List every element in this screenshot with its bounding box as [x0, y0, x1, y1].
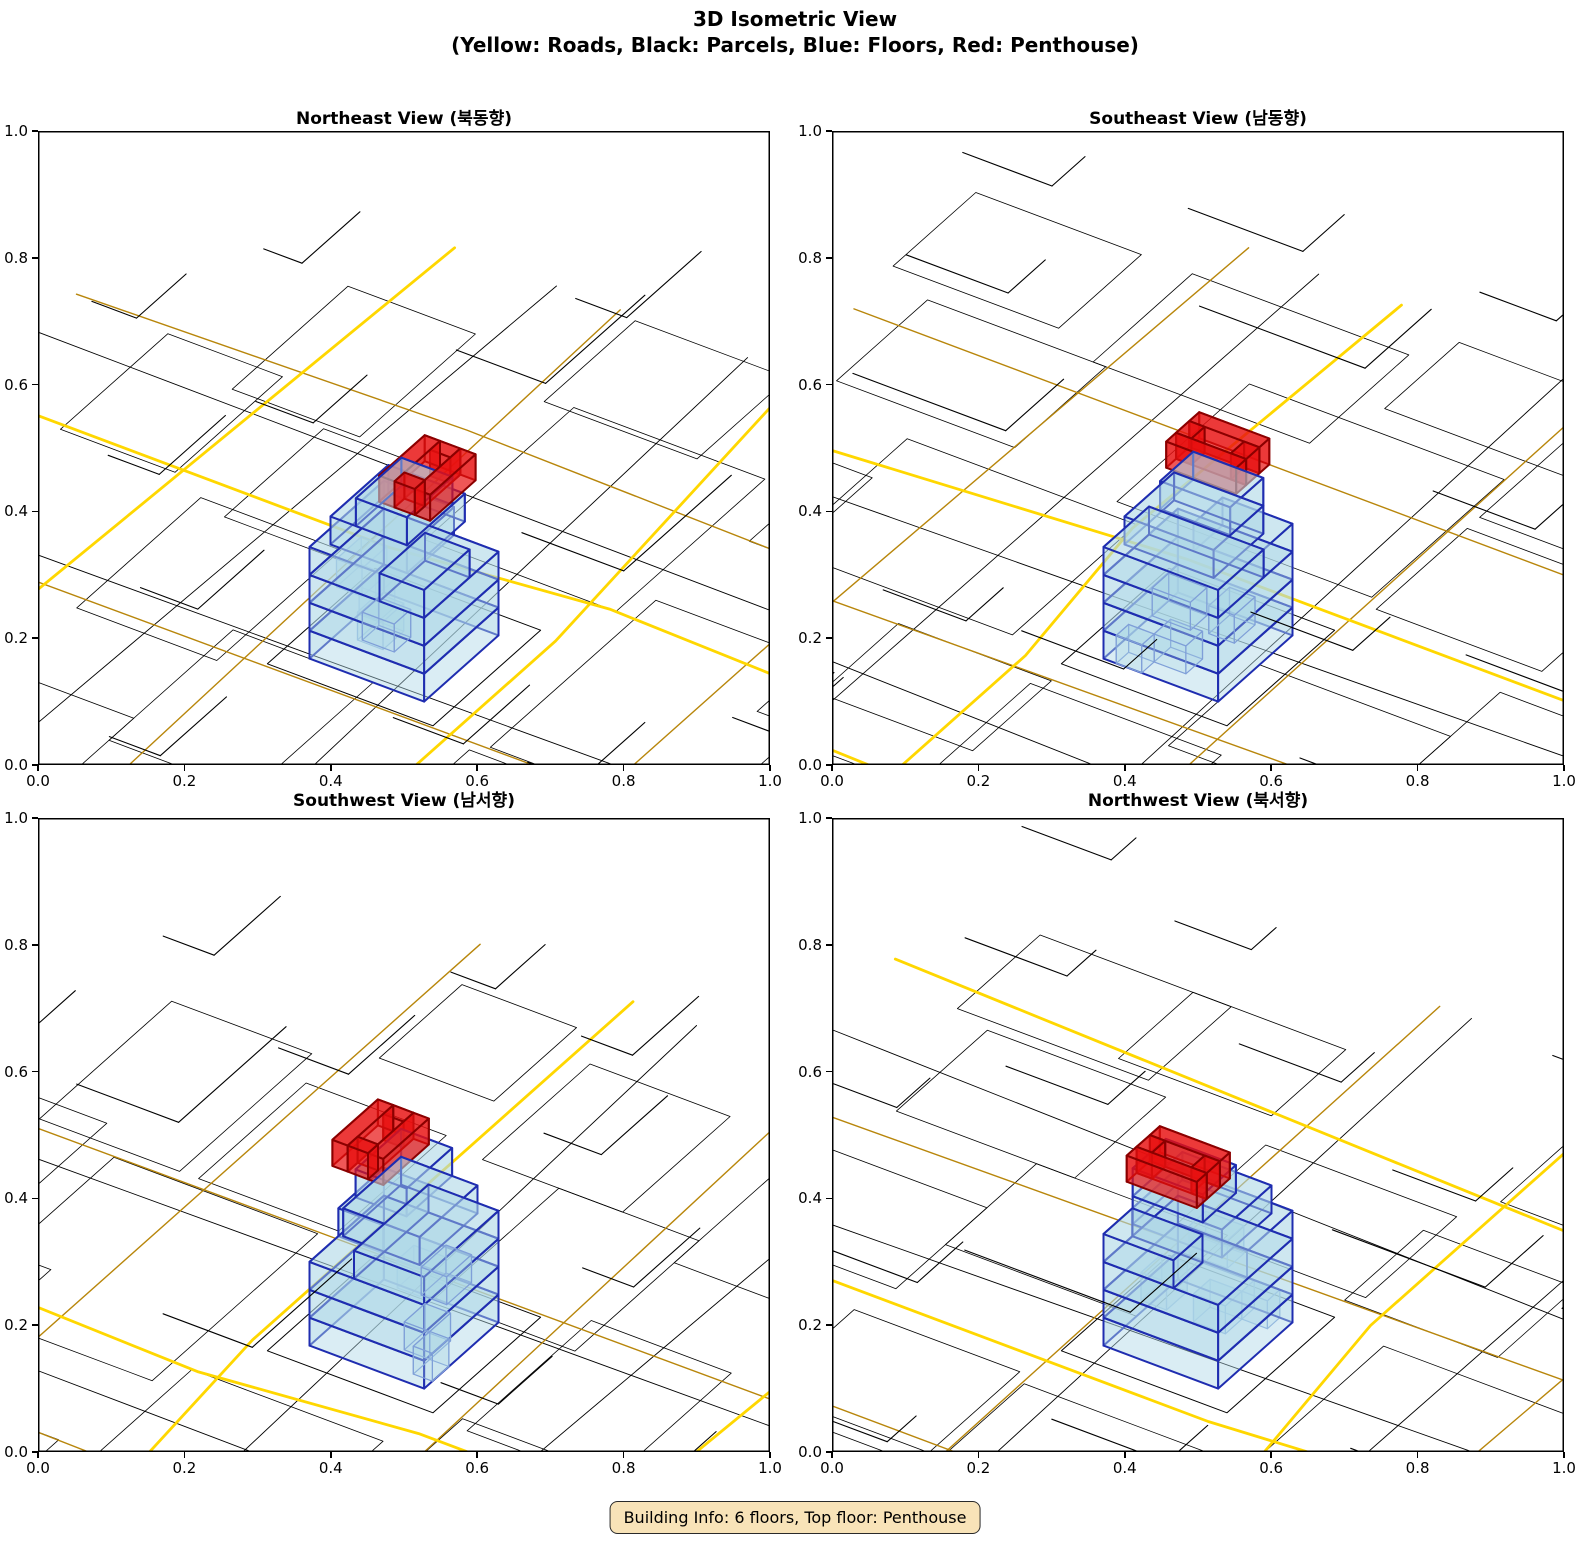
x-tick-label: 0.4 [311, 1460, 351, 1476]
x-tick-label: 1.0 [750, 773, 790, 789]
x-tick-label: 0.2 [958, 1460, 998, 1476]
x-tick-mark [37, 765, 39, 771]
x-tick-mark [1270, 1452, 1272, 1458]
y-tick-mark [826, 637, 832, 639]
x-tick-mark [184, 765, 186, 771]
y-tick-label: 0.8 [790, 937, 822, 953]
x-tick-mark [769, 765, 771, 771]
x-tick-label: 1.0 [750, 1460, 790, 1476]
y-tick-label: 0.6 [790, 377, 822, 393]
y-tick-mark [32, 511, 38, 513]
y-tick-mark [826, 384, 832, 386]
y-tick-label: 0.0 [790, 1444, 822, 1460]
subplot-title-southeast: Southeast View (남동향) [832, 104, 1564, 129]
x-tick-label: 0.8 [604, 773, 644, 789]
x-tick-mark [37, 1452, 39, 1458]
x-tick-label: 0.6 [1251, 773, 1291, 789]
figure-subtitle: (Yellow: Roads, Black: Parcels, Blue: Fl… [0, 32, 1590, 58]
x-tick-label: 0.4 [311, 773, 351, 789]
x-tick-label: 0.8 [1398, 773, 1438, 789]
x-tick-label: 0.8 [604, 1460, 644, 1476]
x-tick-mark [831, 1452, 833, 1458]
y-tick-mark [32, 1324, 38, 1326]
x-tick-mark [1124, 765, 1126, 771]
x-tick-label: 1.0 [1544, 773, 1584, 789]
figure-title: 3D Isometric View [0, 6, 1590, 32]
x-tick-mark [978, 765, 980, 771]
subplot-title-northwest: Northwest View (북서향) [832, 786, 1564, 811]
x-tick-label: 0.2 [164, 773, 204, 789]
x-tick-label: 0.0 [812, 1460, 852, 1476]
y-tick-label: 1.0 [790, 810, 822, 826]
y-tick-label: 0.2 [790, 1317, 822, 1333]
x-tick-mark [330, 1452, 332, 1458]
x-tick-label: 0.2 [958, 773, 998, 789]
y-tick-mark [32, 944, 38, 946]
x-tick-mark [769, 1452, 771, 1458]
y-tick-mark [32, 130, 38, 132]
x-tick-mark [978, 1452, 980, 1458]
y-tick-label: 1.0 [0, 123, 28, 139]
y-tick-label: 0.0 [0, 1444, 28, 1460]
y-tick-label: 0.6 [0, 1064, 28, 1080]
x-tick-mark [1417, 765, 1419, 771]
y-tick-mark [32, 1198, 38, 1200]
x-tick-mark [623, 765, 625, 771]
y-tick-label: 0.8 [790, 250, 822, 266]
x-tick-mark [184, 1452, 186, 1458]
building-info-box: Building Info: 6 floors, Top floor: Pent… [610, 1501, 981, 1534]
y-tick-label: 0.0 [0, 757, 28, 773]
y-tick-mark [32, 1071, 38, 1073]
y-tick-label: 0.4 [790, 1190, 822, 1206]
subplot-title-southwest: Southwest View (남서향) [38, 786, 770, 811]
y-tick-label: 0.2 [0, 1317, 28, 1333]
y-tick-mark [32, 637, 38, 639]
x-tick-mark [1270, 765, 1272, 771]
y-tick-label: 0.2 [790, 630, 822, 646]
y-tick-mark [826, 817, 832, 819]
x-tick-mark [831, 765, 833, 771]
x-tick-label: 0.8 [1398, 1460, 1438, 1476]
y-tick-label: 0.0 [790, 757, 822, 773]
y-tick-mark [826, 257, 832, 259]
x-tick-mark [1563, 1452, 1565, 1458]
y-tick-label: 0.8 [0, 250, 28, 266]
x-tick-mark [476, 765, 478, 771]
x-tick-label: 0.4 [1105, 1460, 1145, 1476]
scene-canvas-northwest [832, 818, 1564, 1452]
y-tick-label: 0.6 [790, 1064, 822, 1080]
x-tick-mark [1563, 765, 1565, 771]
y-tick-mark [826, 944, 832, 946]
x-tick-label: 0.0 [18, 1460, 58, 1476]
x-tick-label: 0.0 [812, 773, 852, 789]
y-tick-mark [32, 384, 38, 386]
y-tick-label: 1.0 [0, 810, 28, 826]
figure: 3D Isometric View (Yellow: Roads, Black:… [0, 0, 1590, 1560]
x-tick-label: 0.6 [457, 773, 497, 789]
scene-canvas-southeast [832, 131, 1564, 765]
scene-canvas-northeast [38, 131, 770, 765]
y-tick-mark [826, 511, 832, 513]
scene-canvas-southwest [38, 818, 770, 1452]
x-tick-mark [1124, 1452, 1126, 1458]
x-tick-label: 0.2 [164, 1460, 204, 1476]
y-tick-label: 0.4 [0, 1190, 28, 1206]
subplot-title-northeast: Northeast View (북동향) [38, 104, 770, 129]
y-tick-mark [826, 1071, 832, 1073]
y-tick-mark [826, 130, 832, 132]
y-tick-label: 0.8 [0, 937, 28, 953]
x-tick-label: 1.0 [1544, 1460, 1584, 1476]
y-tick-label: 1.0 [790, 123, 822, 139]
x-tick-label: 0.4 [1105, 773, 1145, 789]
x-tick-mark [623, 1452, 625, 1458]
x-tick-label: 0.6 [457, 1460, 497, 1476]
x-tick-label: 0.0 [18, 773, 58, 789]
y-tick-label: 0.6 [0, 377, 28, 393]
x-tick-mark [1417, 1452, 1419, 1458]
y-tick-mark [32, 257, 38, 259]
y-tick-mark [32, 817, 38, 819]
x-tick-label: 0.6 [1251, 1460, 1291, 1476]
y-tick-mark [826, 1198, 832, 1200]
y-tick-label: 0.4 [0, 503, 28, 519]
y-tick-mark [826, 1324, 832, 1326]
y-tick-label: 0.4 [790, 503, 822, 519]
x-tick-mark [330, 765, 332, 771]
y-tick-label: 0.2 [0, 630, 28, 646]
x-tick-mark [476, 1452, 478, 1458]
